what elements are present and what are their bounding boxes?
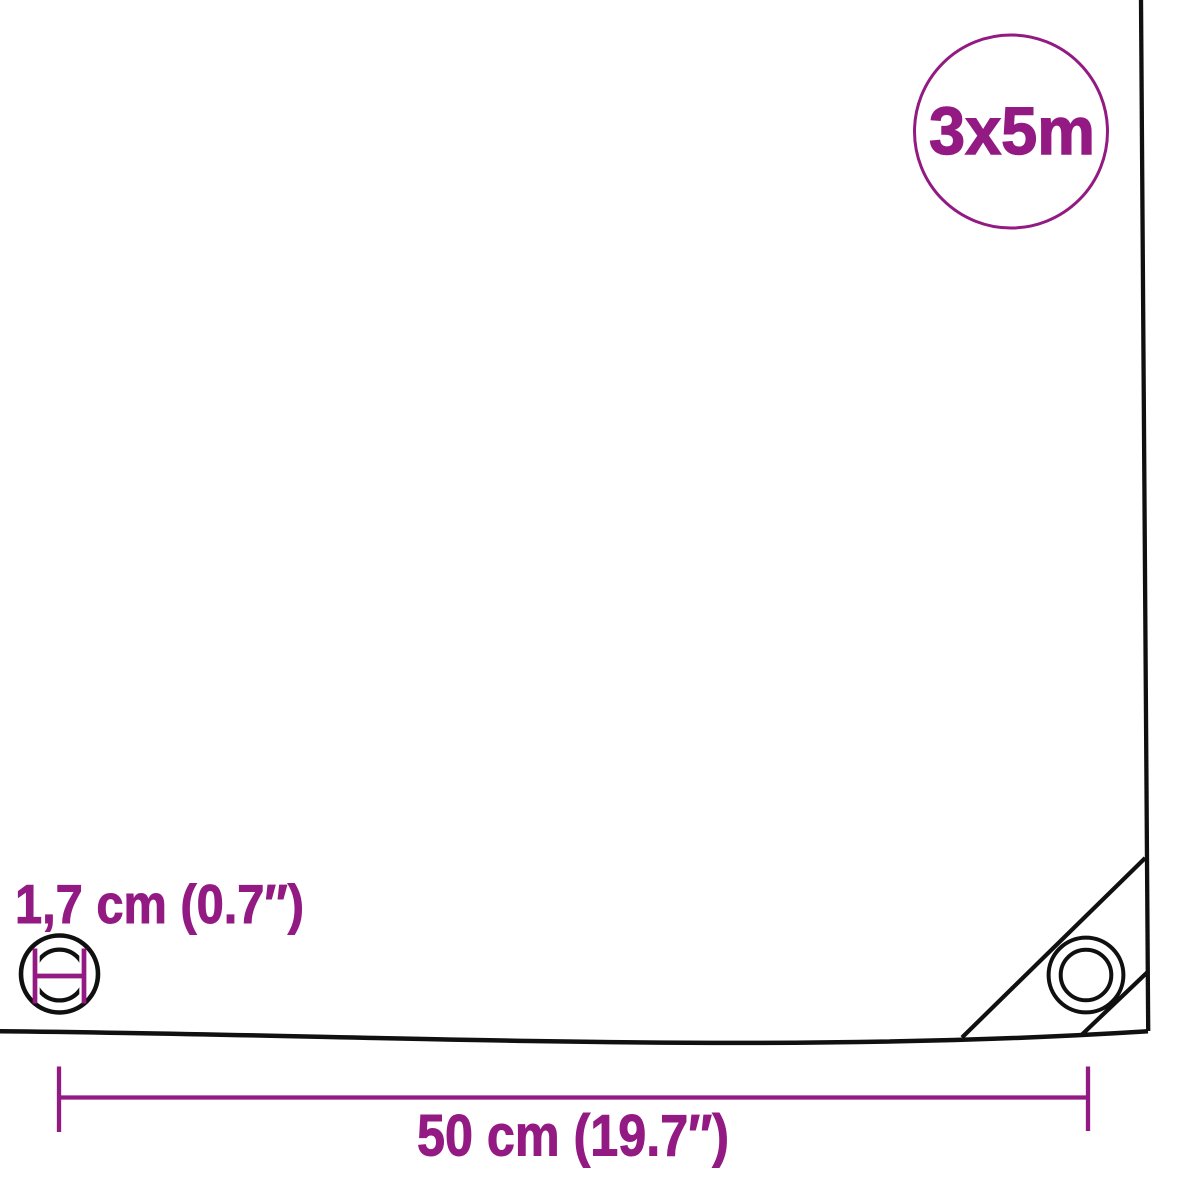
svg-text:3x5m: 3x5m bbox=[929, 94, 1095, 169]
svg-text:50 cm (19.7″): 50 cm (19.7″) bbox=[417, 1104, 729, 1169]
svg-text:1,7 cm (0.7″): 1,7 cm (0.7″) bbox=[15, 873, 304, 935]
